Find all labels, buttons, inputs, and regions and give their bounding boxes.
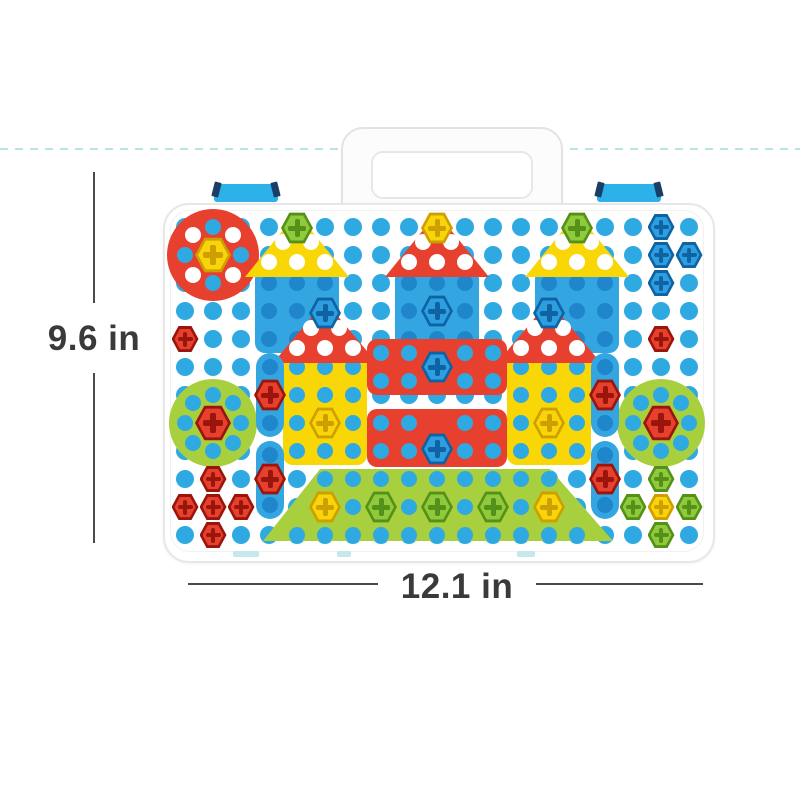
hex-nut-red-slot xyxy=(659,332,663,347)
board-dot xyxy=(288,470,306,488)
screw-yellow-slot xyxy=(323,498,328,516)
piece-hole xyxy=(261,331,277,347)
board-dot xyxy=(484,302,502,320)
piece-hole xyxy=(653,443,669,459)
piece-hole xyxy=(289,254,305,270)
board-dot xyxy=(484,218,502,236)
piece-hole xyxy=(261,303,277,319)
piece-hole xyxy=(541,387,557,403)
piece-hole xyxy=(373,345,389,361)
board-dot xyxy=(624,330,642,348)
board-dot xyxy=(176,302,194,320)
piece-hole xyxy=(289,303,305,319)
piece-hole xyxy=(233,247,249,263)
screw-yellow-slot xyxy=(547,414,552,432)
piece-hole xyxy=(457,443,473,459)
piece-hole xyxy=(345,415,361,431)
piece-hole xyxy=(541,254,557,270)
screw-green-slot xyxy=(491,498,496,516)
piece-hole xyxy=(457,471,473,487)
piece-hole xyxy=(205,387,221,403)
screw-red-slot xyxy=(603,470,608,488)
hex-nut-yellow-slot xyxy=(659,500,663,515)
board-dot xyxy=(512,302,530,320)
piece-hole xyxy=(513,340,529,356)
piece-hole xyxy=(457,527,473,543)
pegboard-mosaic xyxy=(0,0,800,800)
hex-nut-green-slot xyxy=(631,500,635,515)
piece-hole xyxy=(673,435,689,451)
piece-hole xyxy=(457,415,473,431)
piece-hole xyxy=(569,254,585,270)
piece-hole xyxy=(597,254,613,270)
piece-hole xyxy=(457,373,473,389)
piece-hole xyxy=(262,447,278,463)
board-dot xyxy=(652,302,670,320)
piece-hole xyxy=(317,443,333,459)
hex-nut-blue-slot xyxy=(659,220,663,235)
piece-hole xyxy=(633,395,649,411)
piece-hole xyxy=(513,387,529,403)
piece-hole xyxy=(289,387,305,403)
screw-yellow-slot xyxy=(210,245,216,265)
piece-hole xyxy=(485,373,501,389)
piece-hole xyxy=(681,415,697,431)
piece-hole xyxy=(653,387,669,403)
board-dot xyxy=(624,358,642,376)
piece-hole xyxy=(429,254,445,270)
screw-yellow-slot xyxy=(323,414,328,432)
piece-hole xyxy=(569,443,585,459)
piece-hole xyxy=(457,275,473,291)
board-dot xyxy=(176,470,194,488)
board-dot xyxy=(372,218,390,236)
piece-hole xyxy=(225,435,241,451)
hex-nut-red-slot xyxy=(211,500,215,515)
piece-hole xyxy=(541,340,557,356)
screw-red-slot xyxy=(210,413,216,433)
board-dot xyxy=(232,526,250,544)
piece-hole xyxy=(513,443,529,459)
board-dot xyxy=(652,358,670,376)
screw-blue-slot xyxy=(435,302,440,320)
piece-hole xyxy=(261,254,277,270)
piece-hole xyxy=(373,443,389,459)
board-dot xyxy=(484,246,502,264)
piece-hole xyxy=(569,303,585,319)
piece-hole xyxy=(625,415,641,431)
piece-hole xyxy=(289,340,305,356)
board-dot xyxy=(400,218,418,236)
piece-hole xyxy=(177,415,193,431)
piece-hole xyxy=(401,275,417,291)
piece-hole xyxy=(345,471,361,487)
board-dot xyxy=(456,218,474,236)
board-dot xyxy=(344,218,362,236)
piece-hole xyxy=(633,435,649,451)
piece-hole xyxy=(485,345,501,361)
piece-hole xyxy=(485,443,501,459)
piece-hole xyxy=(429,275,445,291)
board-dot xyxy=(624,470,642,488)
board-dot xyxy=(624,218,642,236)
board-dot xyxy=(372,246,390,264)
piece-hole xyxy=(345,499,361,515)
piece-hole xyxy=(541,275,557,291)
board-dot xyxy=(344,246,362,264)
board-dot xyxy=(624,302,642,320)
board-dot xyxy=(680,218,698,236)
piece-hole xyxy=(401,527,417,543)
piece-hole xyxy=(262,497,278,513)
hex-nut-green-slot xyxy=(659,472,663,487)
piece-hole xyxy=(457,254,473,270)
piece-hole xyxy=(373,373,389,389)
piece-hole xyxy=(373,527,389,543)
hex-nut-blue-slot xyxy=(659,276,663,291)
piece-hole xyxy=(569,415,585,431)
screw-green-slot xyxy=(575,219,580,237)
product-dimension-image: 9.6 in 12.1 in xyxy=(0,0,800,800)
board-dot xyxy=(316,218,334,236)
screw-yellow-slot xyxy=(435,219,440,237)
board-dot xyxy=(344,302,362,320)
screw-green-slot xyxy=(379,498,384,516)
piece-hole xyxy=(597,303,613,319)
piece-hole xyxy=(541,471,557,487)
piece-hole xyxy=(345,340,361,356)
piece-hole xyxy=(317,275,333,291)
hex-nut-green-slot xyxy=(659,528,663,543)
piece-hole xyxy=(262,359,278,375)
piece-hole xyxy=(185,267,201,283)
piece-hole xyxy=(569,387,585,403)
piece-hole xyxy=(373,415,389,431)
screw-red-slot xyxy=(268,470,273,488)
hex-nut-blue-slot xyxy=(687,248,691,263)
piece-hole xyxy=(401,471,417,487)
screw-yellow-slot xyxy=(547,498,552,516)
piece-hole xyxy=(673,395,689,411)
piece-hole xyxy=(429,527,445,543)
piece-hole xyxy=(597,275,613,291)
piece-hole xyxy=(205,443,221,459)
piece-hole xyxy=(225,395,241,411)
piece-hole xyxy=(317,471,333,487)
piece-hole xyxy=(345,527,361,543)
piece-hole xyxy=(401,373,417,389)
piece-hole xyxy=(289,527,305,543)
piece-hole xyxy=(225,267,241,283)
piece-hole xyxy=(597,497,613,513)
board-dot xyxy=(680,330,698,348)
piece-hole xyxy=(597,359,613,375)
board-dot xyxy=(372,302,390,320)
hex-nut-red-slot xyxy=(183,332,187,347)
screw-blue-slot xyxy=(435,358,440,376)
piece-hole xyxy=(261,275,277,291)
screw-blue-slot xyxy=(435,440,440,458)
piece-hole xyxy=(485,527,501,543)
board-dot xyxy=(232,470,250,488)
board-dot xyxy=(176,526,194,544)
piece-hole xyxy=(185,395,201,411)
piece-hole xyxy=(345,443,361,459)
piece-hole xyxy=(401,254,417,270)
piece-hole xyxy=(401,443,417,459)
piece-hole xyxy=(457,303,473,319)
piece-hole xyxy=(401,345,417,361)
piece-hole xyxy=(513,471,529,487)
piece-hole xyxy=(401,415,417,431)
board-dot xyxy=(204,302,222,320)
screw-red-slot xyxy=(603,386,608,404)
screw-green-slot xyxy=(295,219,300,237)
board-dot xyxy=(260,218,278,236)
piece-hole xyxy=(177,247,193,263)
piece-hole xyxy=(513,415,529,431)
piece-hole xyxy=(401,499,417,515)
board-dot xyxy=(232,302,250,320)
piece-hole xyxy=(317,254,333,270)
piece-hole xyxy=(597,331,613,347)
board-dot xyxy=(204,330,222,348)
hex-nut-red-slot xyxy=(211,472,215,487)
board-dot xyxy=(512,246,530,264)
hex-nut-red-slot xyxy=(183,500,187,515)
piece-hole xyxy=(569,340,585,356)
piece-hole xyxy=(541,527,557,543)
piece-hole xyxy=(317,340,333,356)
screw-red-slot xyxy=(268,386,273,404)
piece-hole xyxy=(513,499,529,515)
screw-green-slot xyxy=(435,498,440,516)
screw-red-slot xyxy=(658,413,664,433)
board-dot xyxy=(680,470,698,488)
piece-hole xyxy=(317,527,333,543)
board-dot xyxy=(540,218,558,236)
piece-hole xyxy=(485,471,501,487)
hex-nut-green-slot xyxy=(687,500,691,515)
piece-hole xyxy=(345,387,361,403)
piece-hole xyxy=(225,227,241,243)
piece-hole xyxy=(317,387,333,403)
hex-nut-blue-slot xyxy=(659,248,663,263)
piece-hole xyxy=(597,447,613,463)
board-dot xyxy=(680,302,698,320)
board-dot xyxy=(680,274,698,292)
piece-hole xyxy=(569,527,585,543)
piece-hole xyxy=(457,499,473,515)
board-dot xyxy=(624,526,642,544)
board-dot xyxy=(596,218,614,236)
piece-hole xyxy=(289,275,305,291)
piece-hole xyxy=(597,415,613,431)
piece-hole xyxy=(289,415,305,431)
piece-hole xyxy=(262,415,278,431)
board-dot xyxy=(232,330,250,348)
piece-hole xyxy=(289,443,305,459)
board-dot xyxy=(680,358,698,376)
piece-hole xyxy=(513,527,529,543)
piece-hole xyxy=(233,415,249,431)
hex-nut-red-slot xyxy=(211,528,215,543)
piece-hole xyxy=(569,275,585,291)
screw-blue-slot xyxy=(547,304,552,322)
board-dot xyxy=(624,246,642,264)
board-dot xyxy=(568,470,586,488)
piece-hole xyxy=(373,471,389,487)
board-dot xyxy=(204,358,222,376)
piece-hole xyxy=(485,415,501,431)
piece-hole xyxy=(457,345,473,361)
board-dot xyxy=(176,358,194,376)
screw-blue-slot xyxy=(323,304,328,322)
piece-hole xyxy=(185,227,201,243)
piece-hole xyxy=(541,443,557,459)
piece-hole xyxy=(205,275,221,291)
piece-hole xyxy=(205,219,221,235)
hex-nut-red-slot xyxy=(239,500,243,515)
board-dot xyxy=(680,526,698,544)
piece-hole xyxy=(429,471,445,487)
piece-hole xyxy=(401,303,417,319)
piece-hole xyxy=(185,435,201,451)
board-dot xyxy=(232,358,250,376)
board-dot xyxy=(512,218,530,236)
